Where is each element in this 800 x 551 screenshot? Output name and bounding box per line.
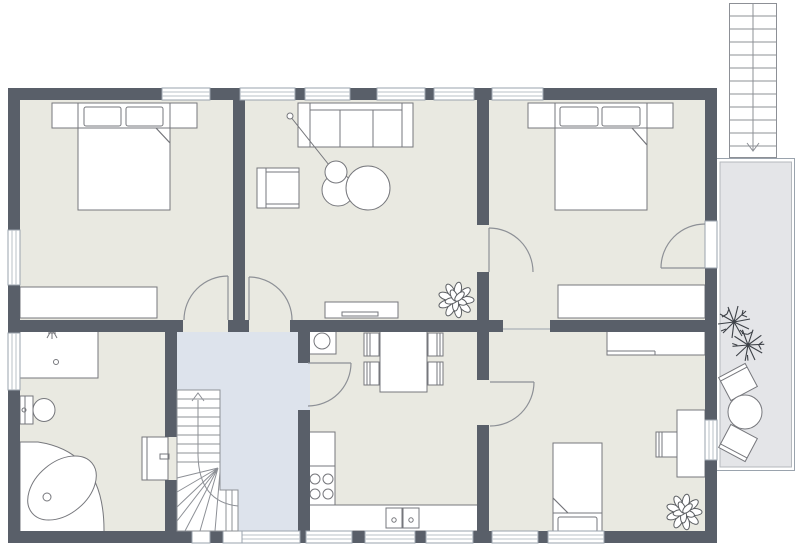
window <box>426 531 473 543</box>
wardrobe <box>20 287 157 318</box>
dining-chair <box>428 333 443 356</box>
stove <box>308 466 335 505</box>
window <box>434 88 474 100</box>
nightstand <box>528 103 555 128</box>
wardrobe <box>558 285 705 318</box>
window <box>305 88 350 100</box>
pillow <box>84 107 121 126</box>
window <box>492 88 543 100</box>
dining-chair <box>364 333 379 356</box>
window <box>162 88 210 100</box>
window <box>365 531 415 543</box>
dining-chair <box>364 362 379 385</box>
window <box>377 88 425 100</box>
window <box>306 531 352 543</box>
external-staircase <box>730 4 777 158</box>
terrace-table <box>728 395 762 429</box>
base-cabinet <box>308 432 335 466</box>
window <box>8 333 20 390</box>
floor-plan-page <box>0 0 800 551</box>
window <box>492 531 538 543</box>
coffee-table-large <box>346 166 390 210</box>
floor-plan-canvas <box>0 0 800 551</box>
nightstand <box>52 103 78 128</box>
pillow <box>126 107 163 126</box>
dining-chair <box>428 362 443 385</box>
nightstand <box>170 103 197 128</box>
floor-lamp-base <box>287 113 293 119</box>
window <box>240 88 295 100</box>
window <box>548 531 604 543</box>
armchair <box>257 168 299 208</box>
terrace-door-opening <box>705 221 717 268</box>
floor-lamp-shade <box>325 161 347 183</box>
nightstand <box>647 103 673 128</box>
desk <box>677 410 705 477</box>
shower <box>20 328 98 378</box>
pillow <box>558 517 597 532</box>
dining-table <box>380 325 427 392</box>
window <box>705 420 717 460</box>
pillow <box>602 107 640 126</box>
pillow <box>560 107 598 126</box>
window <box>242 531 300 543</box>
window <box>8 230 20 285</box>
toilet-bowl <box>33 399 55 422</box>
